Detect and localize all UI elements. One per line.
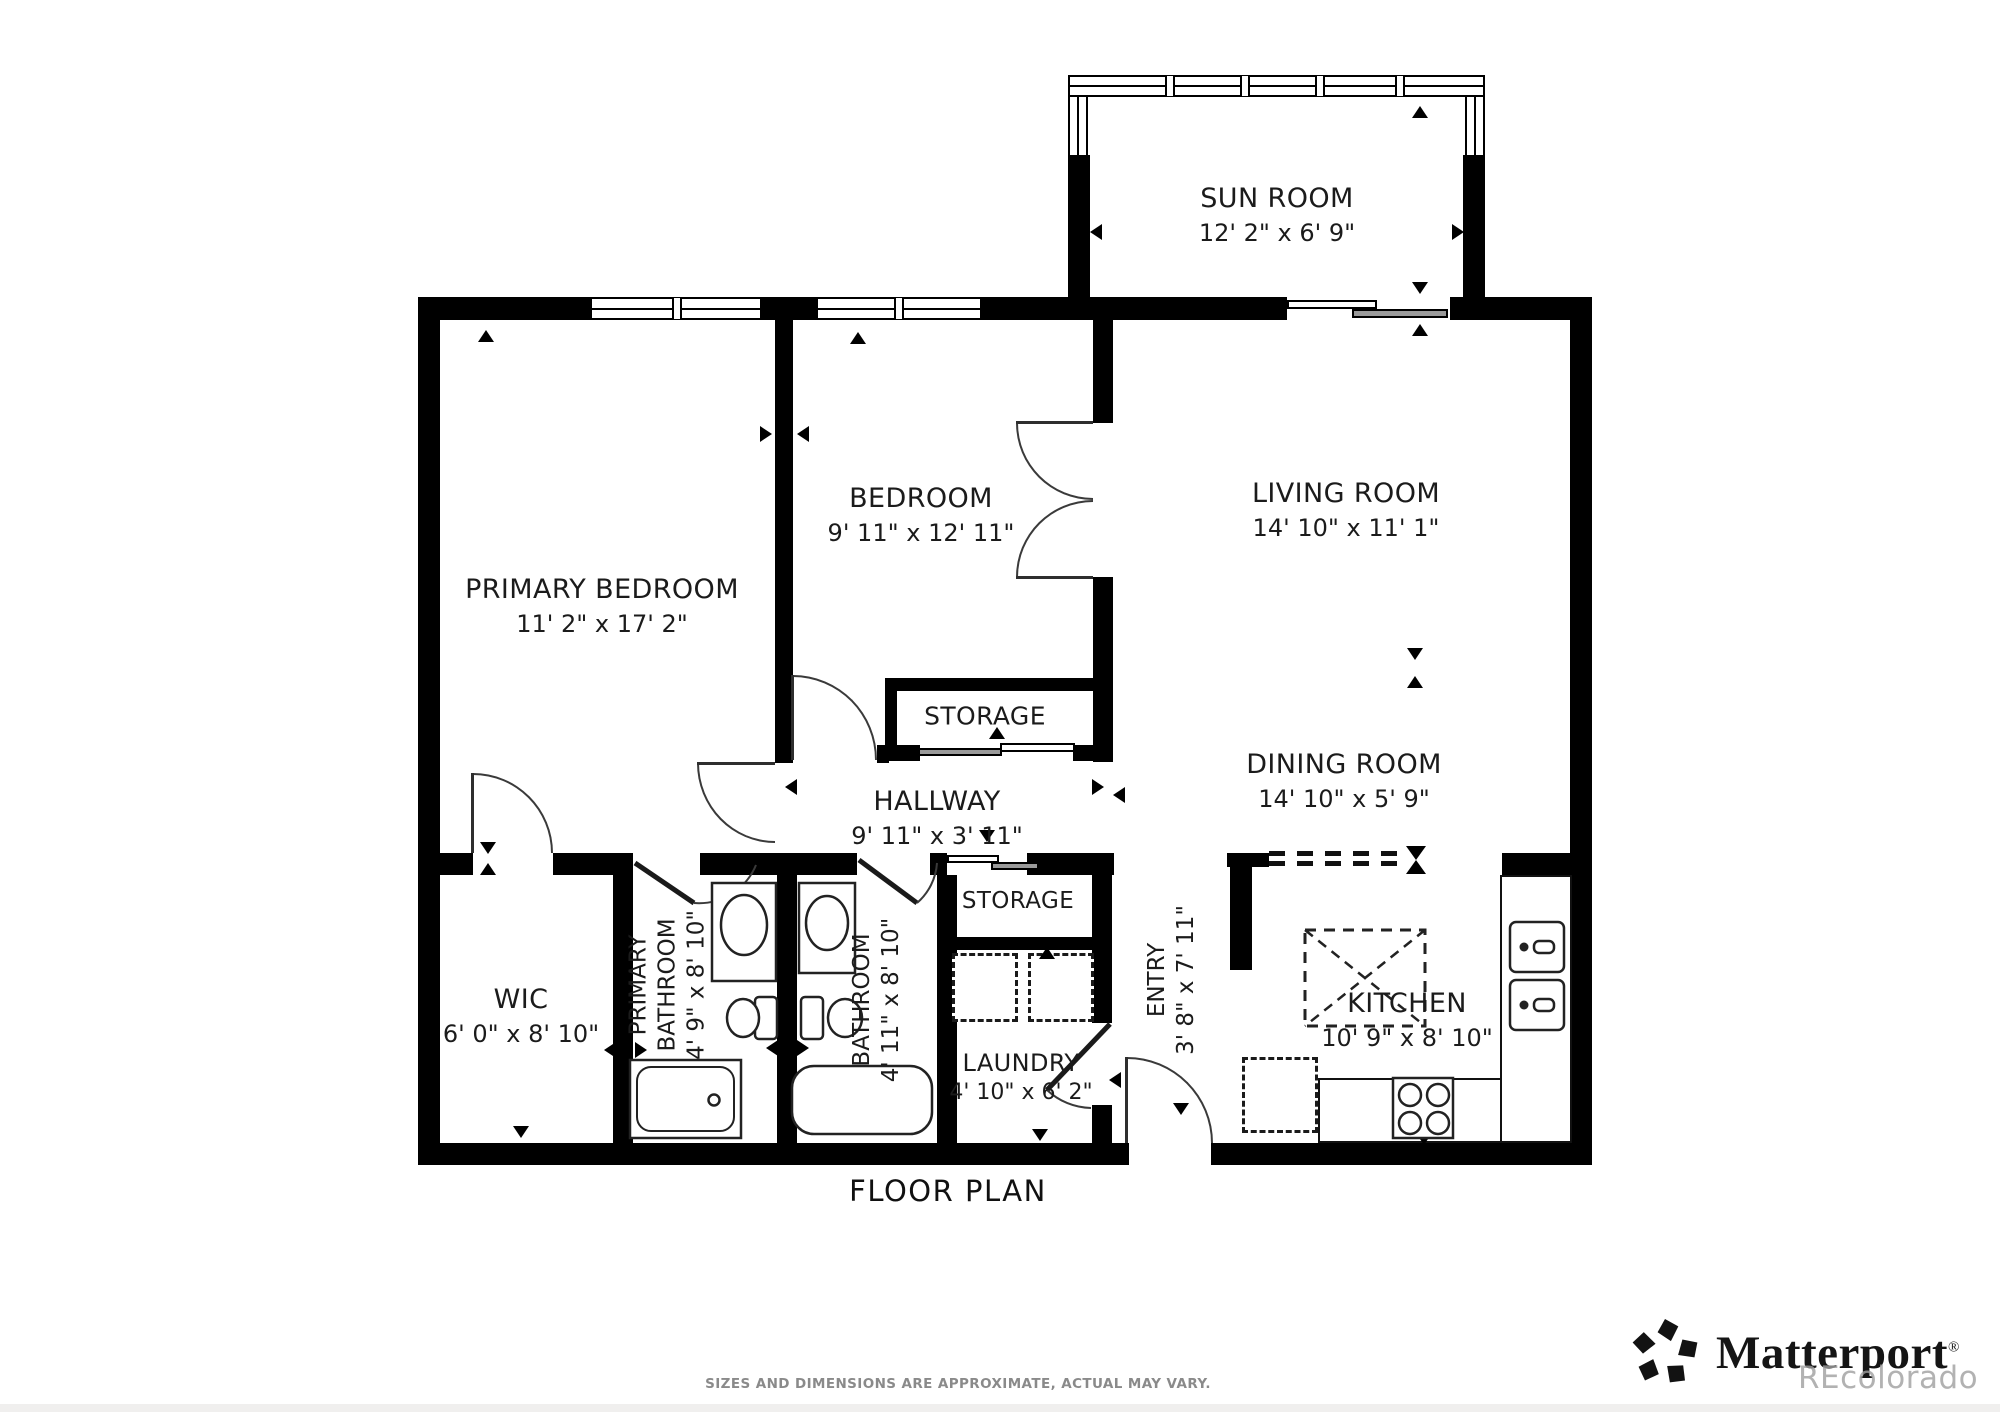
- door-leaf: [1125, 1057, 1128, 1143]
- room-label-primary-bathroom: PRIMARY BATHROOM 4' 9" x 8' 10": [625, 910, 712, 1060]
- dimension-arrow-icon: [785, 779, 797, 795]
- room-label-dining-room: DINING ROOM 14' 10" x 5' 9": [1246, 749, 1442, 813]
- door-arc-icon: [793, 675, 877, 760]
- door-leaf: [1016, 421, 1093, 424]
- door-arc-icon: [697, 763, 775, 843]
- stove-icon: [1391, 1076, 1457, 1142]
- wall-segment: [553, 853, 633, 875]
- dimension-arrow-icon: [426, 427, 438, 443]
- opening-marker-icon: [1406, 860, 1426, 874]
- room-label-bathroom: BATHROOM 4' 11" x 8' 10": [848, 918, 906, 1082]
- room-label-living-room: LIVING ROOM 14' 10" x 11' 1": [1252, 478, 1440, 542]
- disclaimer-text: SIZES AND DIMENSIONS ARE APPROXIMATE, AC…: [705, 1376, 1211, 1392]
- room-label-sun-room: SUN ROOM 12' 2" x 6' 9": [1199, 183, 1355, 247]
- dimension-arrow-icon: [760, 426, 772, 442]
- room-label-hallway: HALLWAY 9' 11" x 3' 11": [851, 786, 1023, 850]
- dimension-arrow-icon: [1090, 224, 1102, 240]
- toilet-icon: [725, 993, 781, 1043]
- door-arc-icon: [1016, 423, 1093, 500]
- dryer-icon: [1028, 953, 1094, 1022]
- dimension-arrow-icon: [1412, 324, 1428, 336]
- wall-segment: [440, 853, 473, 875]
- wall-segment: [1463, 155, 1485, 297]
- dimension-arrow-icon: [1113, 787, 1125, 803]
- wall-segment: [885, 691, 897, 745]
- kitchen-sink-icon: [1508, 918, 1570, 1034]
- dimension-arrow-icon: [1570, 784, 1582, 800]
- wall-segment: [982, 297, 1090, 320]
- door-leaf: [791, 675, 794, 760]
- room-label-entry: ENTRY 3' 8" x 7' 11": [1143, 905, 1201, 1055]
- wall-segment: [1068, 155, 1090, 297]
- dimension-arrow-icon: [1039, 947, 1055, 959]
- dimension-arrow-icon: [1173, 1103, 1189, 1115]
- window-icon: [816, 297, 982, 320]
- dimension-arrow-icon: [604, 1042, 616, 1058]
- open-boundary-dashed-line: [1269, 861, 1409, 866]
- dimension-arrow-icon: [1412, 282, 1428, 294]
- dimension-arrow-icon: [1032, 1129, 1048, 1141]
- room-label-laundry: LAUNDRY 4' 10" x 6' 2": [949, 1049, 1092, 1105]
- open-boundary-dashed-line: [1269, 851, 1409, 856]
- dimension-arrow-icon: [1412, 106, 1428, 118]
- room-label-storage-lower: STORAGE: [962, 888, 1074, 914]
- dimension-arrow-icon: [428, 1042, 440, 1058]
- window-icon: [1068, 95, 1088, 157]
- dimension-arrow-icon: [1092, 779, 1104, 795]
- wall-segment: [1093, 577, 1113, 690]
- room-label-primary-bedroom: PRIMARY BEDROOM 11' 2" x 17' 2": [465, 574, 739, 638]
- wall-segment: [1211, 1143, 1592, 1165]
- dimension-arrow-icon: [513, 1126, 529, 1138]
- wall-segment: [1502, 853, 1592, 875]
- dimension-arrow-icon: [1452, 224, 1464, 240]
- sliding-door-icon: [1287, 300, 1377, 309]
- door-arc-icon: [473, 773, 553, 853]
- wall-segment: [1227, 853, 1269, 867]
- dimension-arrow-icon: [1570, 432, 1582, 448]
- wall-segment: [1570, 297, 1592, 1165]
- wall-segment: [937, 937, 1112, 950]
- wall-segment: [418, 297, 590, 320]
- window-icon: [1068, 75, 1485, 97]
- door-leaf: [697, 762, 775, 765]
- door-leaf: [471, 773, 474, 853]
- opening-marker-icon: [1406, 846, 1426, 860]
- wall-segment: [1093, 320, 1113, 423]
- matterport-logo-icon: [1628, 1316, 1702, 1390]
- sliding-door-icon: [918, 748, 1002, 756]
- washer-icon: [952, 953, 1018, 1022]
- wall-segment: [1093, 690, 1113, 762]
- sliding-door-icon: [991, 862, 1039, 870]
- door-arc-icon: [1127, 1057, 1213, 1143]
- wall-segment: [885, 678, 1113, 691]
- shower-icon: [628, 1058, 745, 1142]
- wall-segment: [1230, 853, 1252, 970]
- sliding-door-icon: [1352, 309, 1448, 318]
- dimension-arrow-icon: [1407, 648, 1423, 660]
- wall-segment: [1027, 853, 1114, 875]
- dimension-arrow-icon: [480, 863, 496, 875]
- floor-plan-page: SUN ROOM 12' 2" x 6' 9" PRIMARY BEDROOM …: [0, 0, 2000, 1412]
- room-label-bedroom: BEDROOM 9' 11" x 12' 11": [828, 483, 1015, 547]
- bottom-strip: [0, 1404, 2000, 1412]
- dimension-arrow-icon: [850, 332, 866, 344]
- window-icon: [1465, 95, 1485, 157]
- door-leaf: [1016, 576, 1093, 579]
- door-arc-icon: [853, 853, 943, 915]
- room-label-storage-upper: STORAGE: [924, 702, 1046, 731]
- dishwasher-icon: [1242, 1057, 1318, 1133]
- door-arc-icon: [1016, 500, 1093, 577]
- dimension-arrow-icon: [797, 426, 809, 442]
- room-label-wic: WIC 6' 0" x 8' 10": [443, 984, 599, 1048]
- registered-mark: ®: [1948, 1339, 1960, 1355]
- sliding-door-icon: [1000, 743, 1075, 752]
- dimension-arrow-icon: [1407, 676, 1423, 688]
- wall-segment: [762, 297, 816, 320]
- dimension-arrow-icon: [480, 842, 496, 854]
- recolorado-watermark: REcolorado: [1798, 1360, 1978, 1396]
- dimension-arrow-icon: [478, 330, 494, 342]
- wall-segment: [885, 745, 920, 761]
- room-label-kitchen: KITCHEN 10' 9" x 8' 10": [1321, 988, 1493, 1052]
- sink-icon: [710, 881, 780, 985]
- wall-segment: [418, 1143, 1129, 1165]
- page-title: FLOOR PLAN: [849, 1174, 1047, 1208]
- window-icon: [590, 297, 762, 320]
- wall-segment: [1090, 297, 1287, 320]
